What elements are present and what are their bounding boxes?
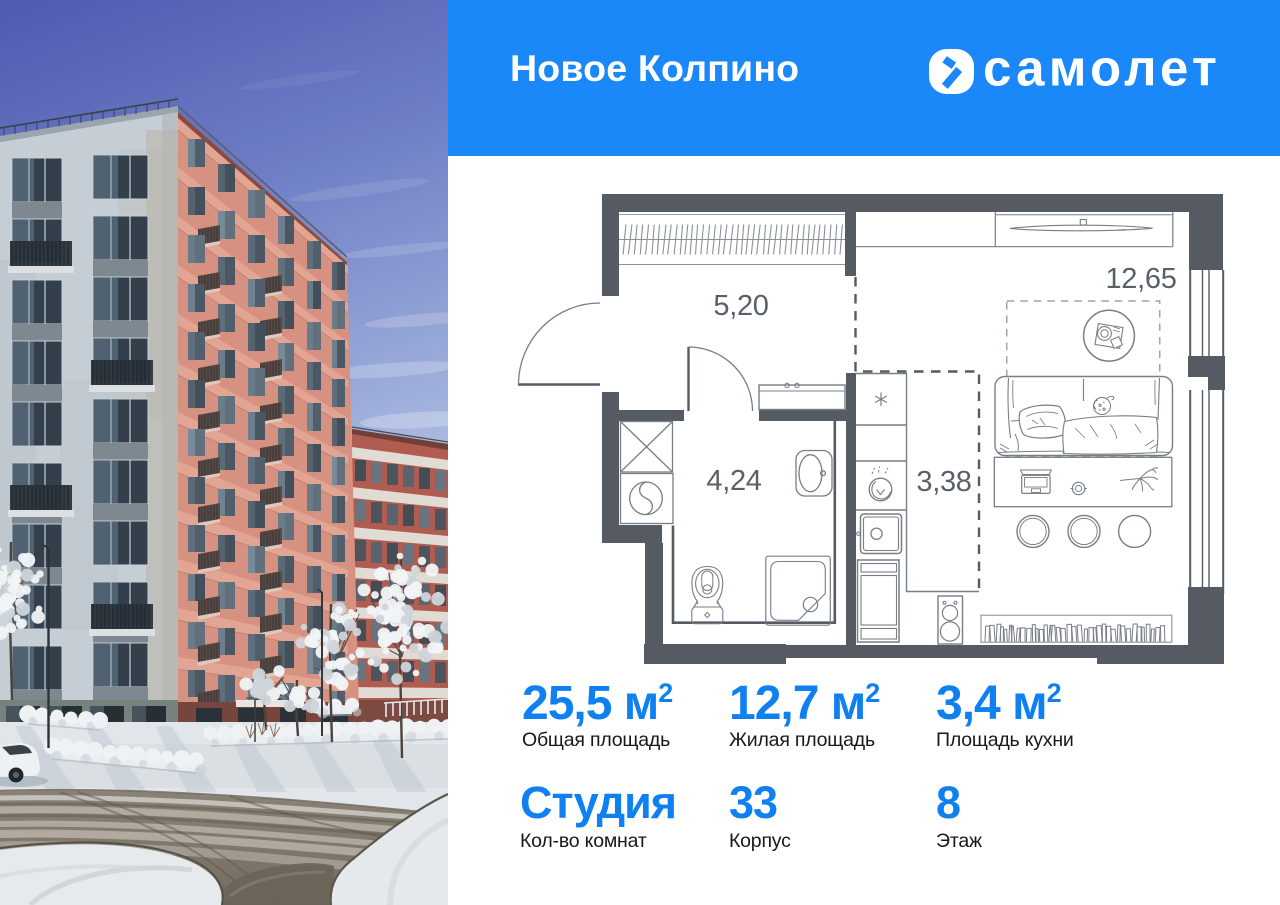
svg-text:4,24: 4,24 <box>706 465 761 497</box>
svg-text:5,20: 5,20 <box>713 290 768 322</box>
svg-text:12,65: 12,65 <box>1105 263 1176 295</box>
svg-text:самолет: самолет <box>983 47 1220 95</box>
svg-text:3,38: 3,38 <box>916 466 971 498</box>
